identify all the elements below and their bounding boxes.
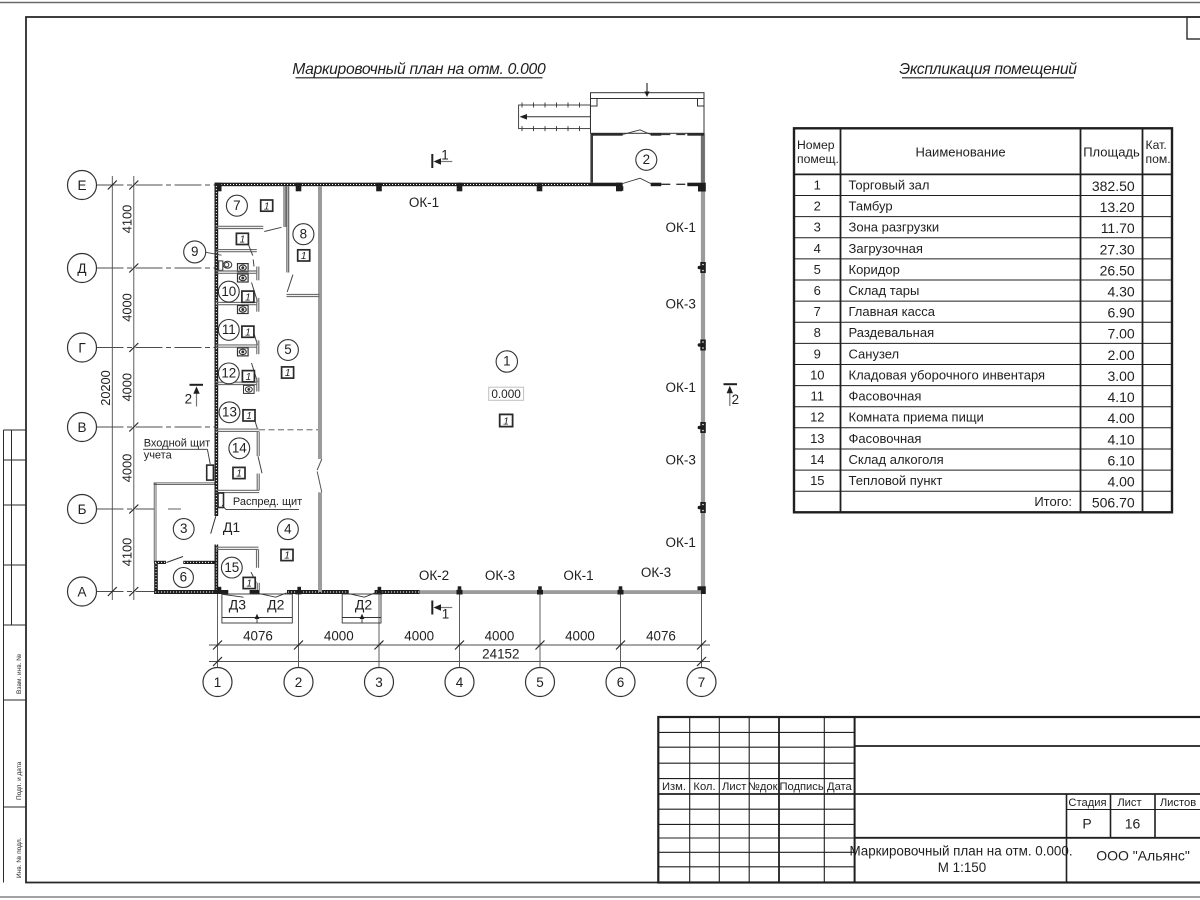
svg-text:24152: 24152 xyxy=(482,647,519,662)
svg-text:ОК-2: ОК-2 xyxy=(419,568,449,583)
svg-text:1: 1 xyxy=(503,354,510,369)
svg-text:Загрузочная: Загрузочная xyxy=(849,241,923,256)
svg-text:Раздевальная: Раздевальная xyxy=(849,325,935,340)
svg-text:М 1:150: М 1:150 xyxy=(938,860,986,875)
svg-text:4100: 4100 xyxy=(119,538,134,566)
svg-text:0.000: 0.000 xyxy=(491,387,521,401)
svg-text:4.00: 4.00 xyxy=(1107,410,1134,426)
svg-text:1: 1 xyxy=(503,415,509,427)
svg-text:Д2: Д2 xyxy=(267,597,284,613)
svg-text:Фасовочная: Фасовочная xyxy=(849,431,922,446)
svg-text:7: 7 xyxy=(233,198,240,213)
svg-text:Тепловой пункт: Тепловой пункт xyxy=(849,473,943,488)
svg-text:15: 15 xyxy=(810,473,824,488)
svg-text:20200: 20200 xyxy=(98,370,113,406)
svg-text:Подпись: Подпись xyxy=(779,781,823,793)
svg-text:1: 1 xyxy=(301,251,307,262)
svg-text:Санузел: Санузел xyxy=(849,346,900,361)
svg-text:1: 1 xyxy=(442,607,449,622)
svg-text:7: 7 xyxy=(698,675,706,690)
svg-text:4000: 4000 xyxy=(119,373,134,401)
svg-text:1: 1 xyxy=(441,148,448,163)
svg-text:помещ.: помещ. xyxy=(797,152,839,166)
svg-text:13: 13 xyxy=(810,431,824,446)
svg-text:4.00: 4.00 xyxy=(1107,474,1134,490)
svg-text:1: 1 xyxy=(285,368,291,379)
svg-text:Маркировочный план на отм. 0.0: Маркировочный план на отм. 0.000 xyxy=(292,61,546,78)
svg-text:Стадия: Стадия xyxy=(1068,797,1106,809)
svg-text:1: 1 xyxy=(814,177,821,192)
svg-text:ОК-1: ОК-1 xyxy=(666,220,696,235)
svg-text:13.20: 13.20 xyxy=(1100,199,1135,215)
svg-text:Маркировочный план на отм. 0.0: Маркировочный план на отм. 0.000. xyxy=(849,843,1072,858)
svg-text:3.00: 3.00 xyxy=(1107,368,1134,384)
svg-text:4000: 4000 xyxy=(485,629,515,644)
svg-text:14: 14 xyxy=(232,441,247,456)
svg-text:Лист: Лист xyxy=(722,781,746,793)
svg-text:Листов: Листов xyxy=(1160,797,1196,809)
svg-text:2: 2 xyxy=(185,392,192,407)
svg-text:1: 1 xyxy=(214,675,222,690)
svg-text:Р: Р xyxy=(1082,815,1091,831)
svg-text:Г: Г xyxy=(78,340,86,355)
svg-text:Наименование: Наименование xyxy=(915,145,1005,160)
svg-text:Кладовая уборочного инвентаря: Кладовая уборочного инвентаря xyxy=(849,368,1046,383)
svg-text:14: 14 xyxy=(810,452,824,467)
svg-text:4: 4 xyxy=(456,675,464,690)
svg-text:3: 3 xyxy=(180,521,187,536)
svg-text:Распред. щит: Распред. щит xyxy=(233,496,302,508)
svg-text:Д1: Д1 xyxy=(223,519,240,535)
svg-text:11: 11 xyxy=(222,322,236,337)
svg-text:5: 5 xyxy=(284,342,291,357)
svg-text:Е: Е xyxy=(77,178,86,193)
svg-text:ОК-1: ОК-1 xyxy=(563,568,593,583)
svg-text:Склад тары: Склад тары xyxy=(849,283,920,298)
svg-text:1: 1 xyxy=(236,469,242,480)
svg-text:7: 7 xyxy=(814,304,821,319)
svg-text:4076: 4076 xyxy=(646,629,676,644)
svg-text:Кол.: Кол. xyxy=(693,781,715,793)
svg-text:Изм.: Изм. xyxy=(662,781,686,793)
svg-text:382.50: 382.50 xyxy=(1092,178,1135,194)
svg-text:Площадь: Площадь xyxy=(1083,145,1140,160)
svg-text:10: 10 xyxy=(810,368,824,383)
svg-text:4: 4 xyxy=(814,241,821,256)
svg-text:7.00: 7.00 xyxy=(1107,326,1134,342)
svg-text:4.10: 4.10 xyxy=(1107,431,1134,447)
svg-text:506.70: 506.70 xyxy=(1092,495,1135,511)
svg-text:Лист: Лист xyxy=(1117,797,1141,809)
svg-text:№док.: №док. xyxy=(748,781,781,793)
svg-text:1: 1 xyxy=(284,551,290,562)
svg-text:ОК-1: ОК-1 xyxy=(666,380,696,395)
svg-text:4000: 4000 xyxy=(324,629,354,644)
svg-text:4.30: 4.30 xyxy=(1107,284,1134,300)
svg-text:ОК-1: ОК-1 xyxy=(666,535,696,550)
svg-text:16: 16 xyxy=(1125,815,1141,831)
svg-text:27.30: 27.30 xyxy=(1100,241,1135,257)
svg-text:4000: 4000 xyxy=(119,454,134,482)
svg-text:Взам. инв. №: Взам. инв. № xyxy=(16,654,23,694)
svg-text:13: 13 xyxy=(222,405,237,420)
svg-text:1: 1 xyxy=(246,579,252,590)
svg-text:9: 9 xyxy=(814,346,821,361)
svg-text:2: 2 xyxy=(643,152,650,167)
svg-text:2.00: 2.00 xyxy=(1107,347,1134,363)
svg-text:ОК-3: ОК-3 xyxy=(641,565,671,580)
svg-text:ООО "Альянс": ООО "Альянс" xyxy=(1096,848,1190,864)
svg-text:26.50: 26.50 xyxy=(1100,262,1135,278)
svg-text:8: 8 xyxy=(814,325,821,340)
svg-text:4: 4 xyxy=(284,521,292,536)
svg-text:5: 5 xyxy=(814,262,821,277)
svg-text:Склад алкоголя: Склад алкоголя xyxy=(849,452,944,467)
svg-text:Подп. и дата: Подп. и дата xyxy=(16,761,23,800)
svg-text:3: 3 xyxy=(375,675,383,690)
svg-text:4076: 4076 xyxy=(243,629,273,644)
svg-text:Главная касса: Главная касса xyxy=(849,304,936,319)
svg-text:Итого:: Итого: xyxy=(1034,494,1072,509)
svg-text:4000: 4000 xyxy=(404,629,434,644)
svg-text:15: 15 xyxy=(224,560,239,575)
svg-text:6.90: 6.90 xyxy=(1107,305,1134,321)
svg-text:Экспликация помещений: Экспликация помещений xyxy=(899,61,1077,78)
svg-text:ОК-3: ОК-3 xyxy=(666,297,696,312)
svg-text:Торговый зал: Торговый зал xyxy=(849,177,930,192)
svg-text:Д3: Д3 xyxy=(229,597,246,613)
svg-text:Фасовочная: Фасовочная xyxy=(849,389,922,404)
svg-text:10: 10 xyxy=(221,284,236,299)
svg-text:Входной щит: Входной щит xyxy=(144,438,211,450)
svg-text:1: 1 xyxy=(245,292,251,303)
svg-text:Инв. № подл.: Инв. № подл. xyxy=(16,837,23,878)
svg-text:ОК-3: ОК-3 xyxy=(485,568,515,583)
svg-text:1: 1 xyxy=(240,235,246,246)
svg-text:пом.: пом. xyxy=(1146,152,1171,166)
svg-text:1: 1 xyxy=(246,372,252,383)
svg-text:1: 1 xyxy=(264,201,270,212)
svg-text:5: 5 xyxy=(536,675,544,690)
svg-text:1: 1 xyxy=(246,411,252,422)
svg-text:1: 1 xyxy=(245,327,251,338)
svg-text:Б: Б xyxy=(78,502,87,517)
svg-text:8: 8 xyxy=(300,226,307,241)
svg-text:2: 2 xyxy=(814,199,821,214)
svg-text:Коридор: Коридор xyxy=(849,262,900,277)
svg-text:Д2: Д2 xyxy=(355,597,372,613)
svg-text:6: 6 xyxy=(814,283,821,298)
svg-text:учета: учета xyxy=(144,450,173,462)
svg-text:11: 11 xyxy=(811,389,825,404)
svg-text:А: А xyxy=(77,584,86,599)
svg-text:4000: 4000 xyxy=(119,293,134,321)
svg-text:Дата: Дата xyxy=(827,781,853,793)
svg-text:ОК-3: ОК-3 xyxy=(666,453,696,468)
svg-text:4100: 4100 xyxy=(119,205,134,233)
svg-text:Зона разгрузки: Зона разгрузки xyxy=(849,220,940,235)
svg-text:Кат.: Кат. xyxy=(1146,138,1167,152)
svg-text:12: 12 xyxy=(810,410,824,425)
svg-text:3: 3 xyxy=(814,220,821,235)
svg-text:Комната приема пищи: Комната приема пищи xyxy=(849,410,984,425)
svg-text:6.10: 6.10 xyxy=(1107,453,1134,469)
svg-text:11.70: 11.70 xyxy=(1101,220,1135,236)
svg-text:В: В xyxy=(77,420,86,435)
svg-text:Д: Д xyxy=(77,261,86,276)
svg-text:2: 2 xyxy=(295,675,303,690)
svg-text:4000: 4000 xyxy=(565,629,595,644)
svg-text:6: 6 xyxy=(180,570,187,585)
svg-text:2: 2 xyxy=(732,392,739,407)
svg-text:4.10: 4.10 xyxy=(1107,389,1134,405)
svg-text:9: 9 xyxy=(191,244,198,259)
svg-text:ОК-1: ОК-1 xyxy=(409,195,439,210)
svg-text:Тамбур: Тамбур xyxy=(849,199,893,214)
svg-text:12: 12 xyxy=(221,366,236,381)
svg-text:6: 6 xyxy=(617,675,625,690)
svg-text:Номер: Номер xyxy=(797,138,835,152)
